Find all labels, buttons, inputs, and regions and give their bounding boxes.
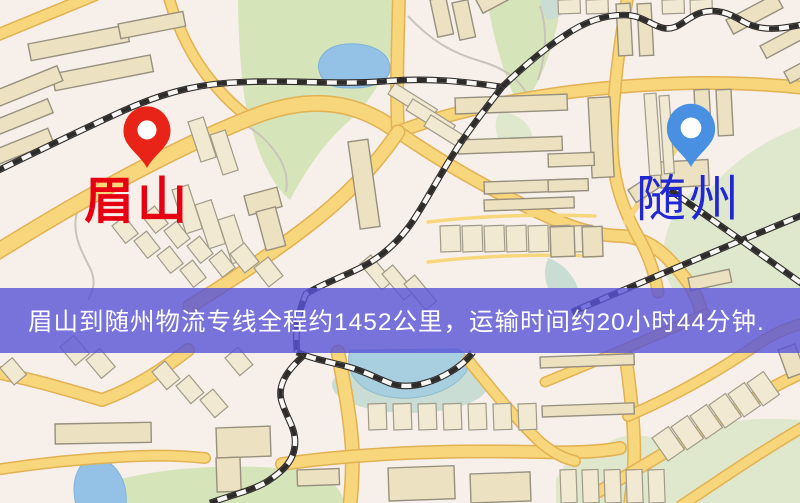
logistics-route-map: 眉山 随州 眉山到随州物流专线全程约1452公里，运输时间约20小时44分钟. — [0, 0, 800, 503]
destination-city-label: 随州 — [636, 174, 742, 224]
destination-pin-icon — [667, 104, 715, 167]
origin-city-label: 眉山 — [84, 176, 190, 226]
route-info-banner: 眉山到随州物流专线全程约1452公里，运输时间约20小时44分钟. — [0, 288, 800, 353]
route-info-text: 眉山到随州物流专线全程约1452公里，运输时间约20小时44分钟. — [28, 303, 765, 338]
map-canvas — [0, 0, 800, 503]
